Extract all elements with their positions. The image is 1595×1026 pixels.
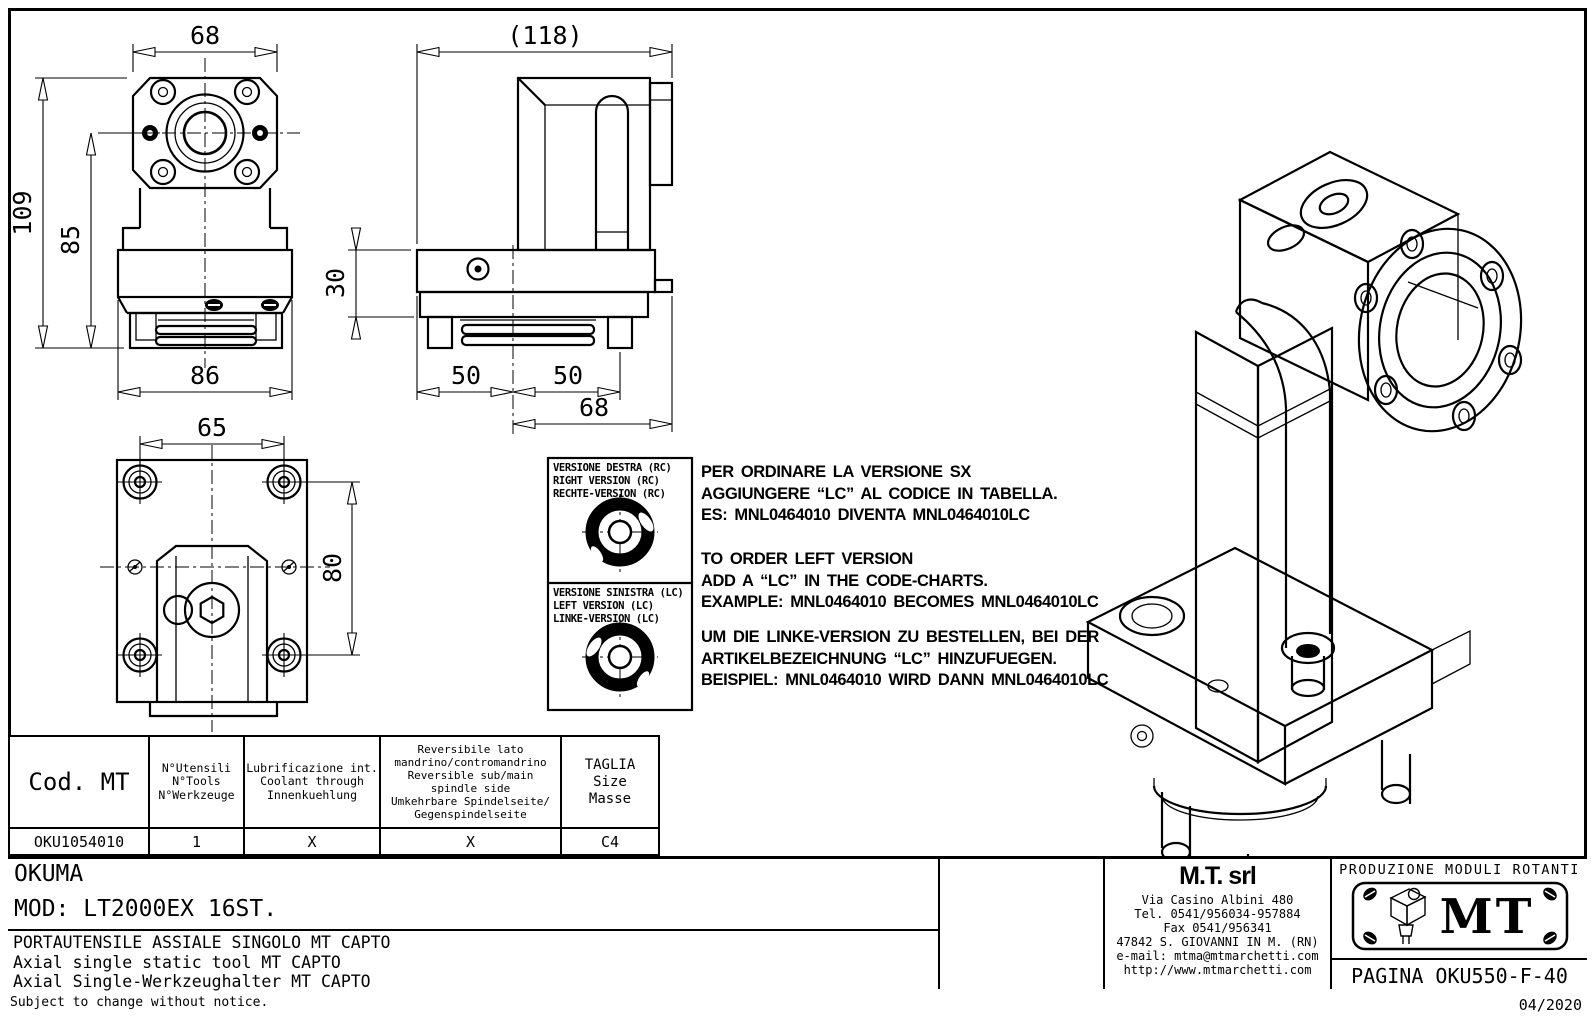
title-block: OKUMA MOD: LT2000EX 16ST. PORTAUTENSILE … — [8, 856, 1587, 989]
dim-top-spacing-x: 65 — [197, 413, 227, 442]
footer-date: 04/2020 — [1470, 996, 1582, 1014]
customer-name: OKUMA — [14, 861, 83, 887]
dim-front-height-total: 109 — [8, 190, 37, 235]
version-right-symbol — [582, 494, 658, 572]
version-panel: VERSIONE DESTRA (RC) RIGHT VERSION (RC) … — [548, 458, 692, 710]
drawing-sheet: 68 109 85 86 — [0, 0, 1595, 1026]
top-socket-screw — [1293, 171, 1374, 238]
logo-text: MT — [1439, 889, 1534, 945]
selection-table: Cod. MT N°Utensili N°Tools N°Werkzeuge L… — [8, 735, 660, 856]
logo-tagline: PRODUZIONE MODULI ROTANTI — [1332, 862, 1587, 878]
ordering-note-italian: PER ORDINARE LA VERSIONE SX AGGIUNGERE “… — [701, 461, 1118, 526]
row-reversible: X — [381, 829, 562, 854]
supplier-phone: Tel. 0541/956034-957884 — [1105, 907, 1330, 921]
ordering-note-german: UM DIE LINKE-VERSION ZU BESTELLEN, BEI D… — [701, 626, 1118, 691]
supplier-name: M.T. srl — [1105, 862, 1330, 891]
version-left-line2: LEFT VERSION (LC) — [553, 600, 654, 612]
page-reference: PAGINA OKU550-F-40 — [1332, 958, 1587, 989]
version-right-line1: VERSIONE DESTRA (RC) — [553, 462, 671, 474]
row-tools: 1 — [150, 829, 245, 854]
supplier-details: Via Casino Albini 480 Tel. 0541/956034-9… — [1105, 893, 1330, 977]
table-header-reversible: Reversibile lato mandrino/contromandrino… — [381, 737, 562, 827]
description-italian: PORTAUTENSILE ASSIALE SINGOLO MT CAPTO — [13, 933, 938, 953]
supplier-website: http://www.mtmarchetti.com — [1105, 963, 1330, 977]
title-block-spare-cell — [940, 859, 1105, 989]
row-code: OKU1054010 — [10, 829, 150, 854]
table-header-size: TAGLIA Size Masse — [562, 737, 658, 827]
logo-block: PRODUZIONE MODULI ROTANTI MT — [1332, 859, 1587, 989]
top-view: 65 80 — [100, 413, 360, 732]
row-size: C4 — [562, 829, 658, 854]
front-view: 68 109 85 86 — [8, 21, 300, 400]
version-right-line3: RECHTE-VERSION (RC) — [553, 488, 666, 500]
title-block-left: OKUMA MOD: LT2000EX 16ST. PORTAUTENSILE … — [8, 859, 940, 989]
corner-holes — [118, 460, 306, 677]
dim-side-overall: (118) — [507, 21, 582, 50]
footer-disclaimer: Subject to change without notice. — [10, 995, 268, 1010]
dim-front-width-body: 86 — [190, 361, 220, 390]
version-right-line2: RIGHT VERSION (RC) — [553, 475, 660, 487]
supplier-block: M.T. srl Via Casino Albini 480 Tel. 0541… — [1105, 859, 1332, 989]
dim-top-spacing-y: 80 — [318, 553, 347, 583]
isometric-view — [1088, 152, 1539, 922]
dim-side-plate-height: 30 — [321, 268, 350, 298]
description-german: Axial Single-Werkzeughalter MT CAPTO — [13, 972, 938, 992]
version-left-line1: VERSIONE SINISTRA (LC) — [553, 587, 683, 599]
side-view: (118) 30 50 50 68 — [321, 21, 672, 435]
description-english: Axial single static tool MT CAPTO — [13, 953, 938, 973]
table-header-coolant: Lubrificazione int. Coolant through Inne… — [245, 737, 381, 827]
supplier-city: 47842 S. GIOVANNI IN M. (RN) — [1105, 935, 1330, 949]
dim-front-width-top: 68 — [190, 21, 220, 50]
mt-logo: MT — [1349, 880, 1571, 952]
supplier-address: Via Casino Albini 480 — [1105, 893, 1330, 907]
flange-face — [1341, 214, 1540, 447]
dim-side-right: 50 — [553, 361, 583, 390]
dim-front-height-axis: 85 — [56, 225, 85, 255]
table-row: OKU1054010 1 X X C4 — [10, 827, 658, 854]
row-coolant: X — [245, 829, 381, 854]
supplier-fax: Fax 0541/956341 — [1105, 921, 1330, 935]
machine-model: MOD: LT2000EX 16ST. — [14, 896, 277, 922]
dim-side-left: 50 — [451, 361, 481, 390]
description-block: PORTAUTENSILE ASSIALE SINGOLO MT CAPTO A… — [8, 929, 938, 992]
logo-machine-icon — [1391, 889, 1425, 945]
version-left-line3: LINKE-VERSION (LC) — [553, 613, 660, 625]
table-header-row: Cod. MT N°Utensili N°Tools N°Werkzeuge L… — [10, 737, 658, 827]
version-left-symbol — [582, 619, 658, 697]
supplier-email: e-mail: mtma@mtmarchetti.com — [1105, 949, 1330, 963]
ordering-note-english: TO ORDER LEFT VERSION ADD A “LC” IN THE … — [701, 548, 1118, 613]
table-header-code: Cod. MT — [10, 737, 150, 827]
dim-side-offset: 68 — [579, 393, 609, 422]
table-header-tools: N°Utensili N°Tools N°Werkzeuge — [150, 737, 245, 827]
